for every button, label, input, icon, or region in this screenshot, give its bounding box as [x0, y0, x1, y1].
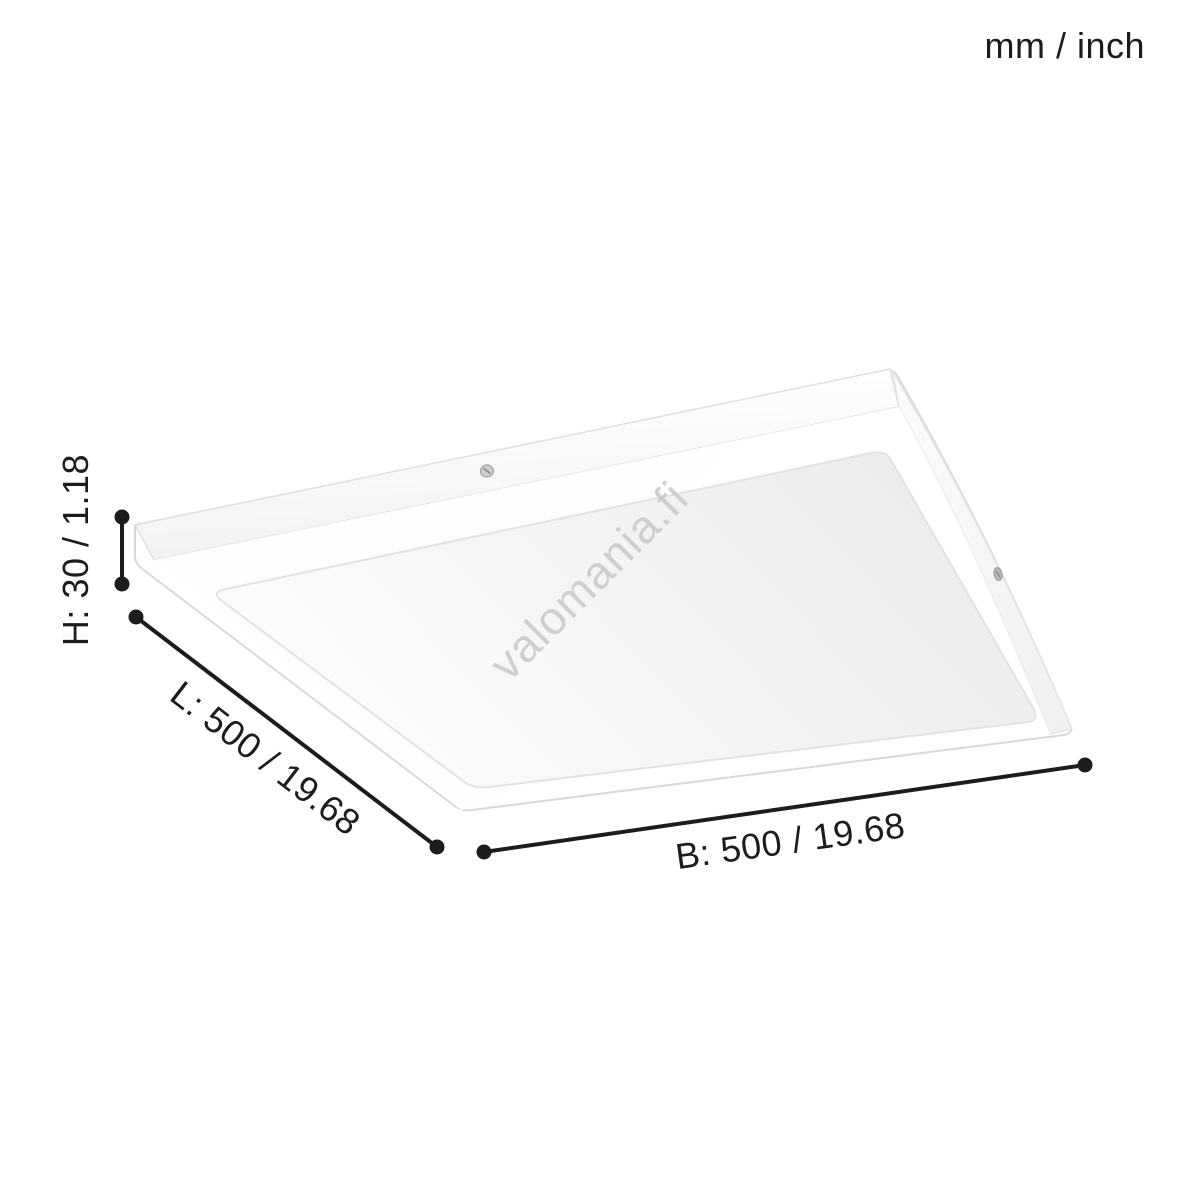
length-dimension-endpoint — [430, 840, 445, 855]
length-dimension-endpoint — [129, 610, 144, 625]
width-dimension-endpoint — [477, 845, 492, 860]
screw-icon — [481, 465, 494, 477]
width-dimension-label: B: 500 / 19.68 — [673, 804, 908, 877]
width-dimension-endpoint — [1078, 758, 1093, 773]
diagram-canvas: valomania.fi H: 30 / 1.18 L: 500 / 19.68… — [0, 0, 1181, 1181]
units-label: mm / inch — [984, 25, 1145, 66]
height-dimension-endpoint — [115, 577, 130, 592]
height-dimension: H: 30 / 1.18 — [55, 454, 130, 646]
height-dimension-label: H: 30 / 1.18 — [55, 454, 96, 646]
product-dimension-diagram: valomania.fi H: 30 / 1.18 L: 500 / 19.68… — [0, 0, 1181, 1181]
height-dimension-endpoint — [115, 510, 130, 525]
